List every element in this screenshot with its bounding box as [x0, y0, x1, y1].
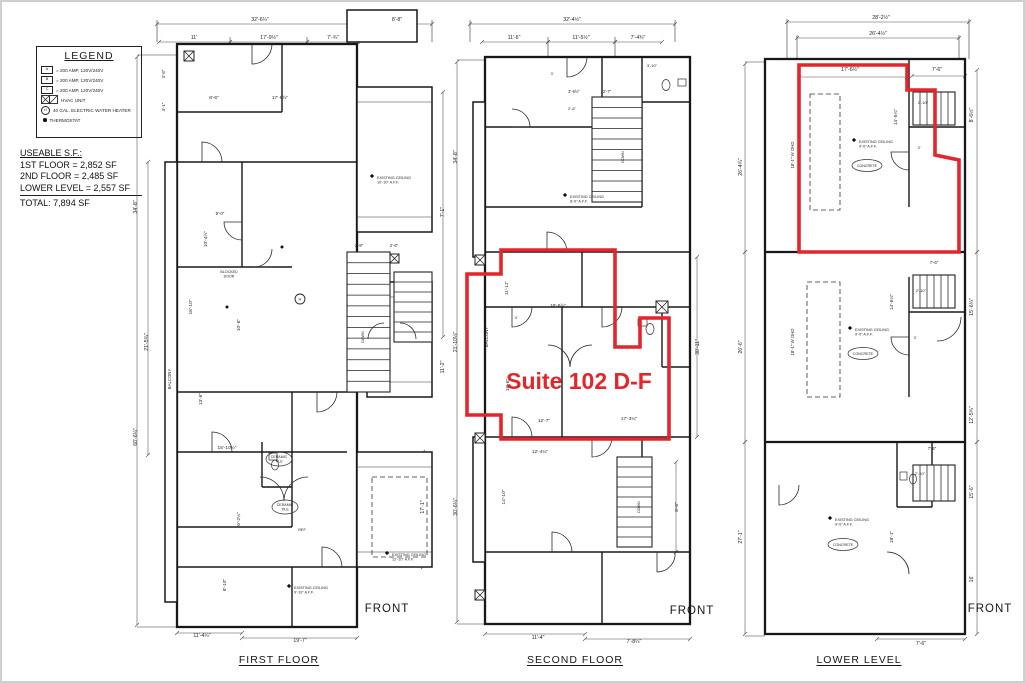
dim-label: BALCONY [167, 369, 172, 390]
dim-label: REF [298, 528, 306, 532]
dim-label: 27'-1" [738, 530, 744, 543]
dim-label: BALCONY [484, 327, 489, 348]
dim-label: 32'-6¼" [251, 17, 269, 23]
dim-label: CONCRETE [853, 352, 874, 356]
legend-item-panel-a: A = 200 AMP, 120V/240V [41, 65, 137, 75]
dim-label: 2'-10" [916, 288, 927, 293]
useable-sf-title: USEABLE S.F.: [20, 148, 142, 160]
dim-label: 11'-4¼" [193, 633, 210, 639]
note-label: EXISTING CEILING [859, 140, 893, 144]
hvac-unit-symbol [390, 254, 399, 263]
door-swings [779, 152, 961, 574]
sf-total: TOTAL: 7,894 SF [20, 198, 142, 210]
dim-label: 7'-6" [916, 641, 926, 647]
note-label: EXISTING CEILING [294, 586, 328, 590]
dim-label: 14'-6¼" [889, 294, 895, 311]
hvac-unit-symbol [184, 51, 194, 61]
dim-label: 16'-10" [188, 299, 194, 314]
note-label: EXISTING CEILING [835, 518, 869, 522]
first-floor-walls [165, 10, 432, 627]
dim-label: 15'-6" [969, 485, 975, 498]
dim-label: 28'-2½" [872, 14, 890, 21]
dim-label: 11'-2" [440, 360, 446, 373]
dim-label: 19'-7" [293, 638, 306, 644]
panel-a-symbol: A [41, 66, 53, 74]
second-floor-plan: Suite 102 D-F 32'-4½"11'-6"11'-5½"7'-4¾"… [452, 7, 752, 667]
front-label-first-floor: FRONT [357, 603, 417, 615]
front-label-second-floor: FRONT [662, 605, 722, 617]
note-label: EXISTING CEILING [570, 195, 604, 199]
lower-level-plan: 28'-2½"26'-4½"17'-6½"7'-6"26'-4¾"26'-6"2… [737, 7, 1025, 667]
floor-plan-sheet: LEGEND A = 200 AMP, 120V/240V B = 200 AM… [0, 0, 1025, 683]
dim-label: 7'-6" [930, 260, 939, 265]
dim-label: 3' [515, 316, 518, 320]
first-floor-plan: H 32'-6¼"8'-8"11'17'-9½"7'-¾"34'-8"60'-6… [132, 7, 462, 667]
dim-label: 18'-6½" [550, 302, 567, 309]
first-floor-title: FIRST FLOOR [209, 654, 349, 666]
dim-label: 17'-9½" [260, 34, 278, 41]
dim-label: 14'-10" [501, 489, 507, 504]
legend-item-hvac: HVAC UNIT [41, 95, 137, 105]
dim-label: 12'-7" [538, 418, 551, 424]
hvac-unit-symbol [475, 433, 485, 443]
dim-label: 13'-6" [198, 393, 204, 406]
dim-label: 18'-1" [889, 531, 895, 544]
legend-box: LEGEND A = 200 AMP, 120V/240V B = 200 AM… [36, 46, 142, 138]
dim-label: 11'-11" [504, 281, 510, 295]
svg-text:9'-0" A.F.F.: 9'-0" A.F.F. [855, 333, 873, 337]
dim-label: 3' [914, 336, 917, 340]
dim-label: 8'-6½" [968, 108, 975, 123]
dim-label: 2'-6" [390, 243, 399, 248]
dim-label: 2'-7" [603, 89, 612, 94]
thermostat-symbol [281, 246, 284, 249]
dim-label: 6'-2¼" [236, 512, 242, 526]
dim-label: 15'-10½" [218, 444, 237, 451]
hvac-unit-symbol [656, 301, 668, 313]
dim-label: 18'-1" W OHD [790, 142, 795, 169]
legend-item-panel-b: B = 200 AMP, 120V/240V [41, 75, 137, 85]
dim-label: 11'-4" [532, 635, 545, 641]
thermostat-icon [43, 118, 47, 122]
water-heater-symbol: H [295, 294, 305, 304]
dim-label: 3' [918, 146, 921, 150]
dim-label: DOWN [361, 331, 365, 343]
dim-label: 12'-5¾" [969, 406, 975, 424]
dim-label: CERAMIC [277, 503, 294, 507]
upper-stairs [592, 97, 642, 202]
dim-label: 2'-10" [915, 471, 926, 476]
dim-label: 26'-4½" [869, 30, 887, 37]
thermostat-symbol [226, 306, 229, 309]
dim-label: 15'-6¼" [969, 298, 975, 316]
dim-label: 16' [969, 576, 975, 583]
dim-label: 7'-6" [928, 446, 937, 451]
dim-label: 17'-6½" [841, 66, 859, 73]
dim-label: 32'-4½" [563, 16, 581, 23]
dim-label: 11' [191, 35, 197, 41]
dim-label: 34'-8" [453, 150, 459, 163]
dim-label: 60'-6¼" [133, 428, 139, 446]
hvac-unit-symbol [475, 590, 485, 600]
dim-label: 7'-¾" [327, 35, 339, 41]
water-heater-icon: H [41, 106, 50, 115]
svg-text:H: H [299, 297, 302, 302]
note-label: EXISTING CEILING [392, 553, 426, 557]
dim-label: 14'-5¼" [893, 109, 899, 126]
svg-text:TILE: TILE [275, 460, 283, 464]
dim-label: 9'-0" [216, 211, 225, 216]
dim-label: 4'-1" [161, 102, 166, 111]
svg-text:8'-0" A.F.F.: 8'-0" A.F.F. [570, 200, 588, 204]
hvac-unit-symbol [475, 255, 485, 265]
front-label-lower-level: FRONT [960, 603, 1020, 615]
svg-text:12'-10" A.F.F.: 12'-10" A.F.F. [392, 558, 414, 562]
sf-line-second-floor: 2ND FLOOR = 2,485 SF [20, 171, 142, 183]
svg-text:DOOR: DOOR [224, 275, 235, 279]
dim-label: 10'-6" [236, 319, 242, 332]
dim-label: 26'-6" [738, 340, 744, 353]
note-label: EXISTING CEILING [377, 176, 411, 180]
dim-label: CONCRETE [857, 164, 878, 168]
dim-label: 7'-1" [440, 207, 446, 217]
dim-label: 2'-8" [355, 243, 364, 248]
main-stairs [347, 252, 390, 392]
dim-label: 7'-8¼" [627, 639, 642, 645]
sink [678, 79, 686, 86]
toilet [662, 80, 670, 91]
suite-102-outline [467, 250, 669, 439]
dim-label: 8'-8" [392, 17, 402, 23]
svg-text:9'-0" A.F.F.: 9'-0" A.F.F. [835, 523, 853, 527]
dim-label: DOWN [621, 151, 625, 163]
dim-label: 3'-6" [161, 69, 166, 78]
dim-label: 16'-6" [505, 379, 511, 392]
svg-text:9'-10" A.F.F.: 9'-10" A.F.F. [294, 591, 314, 595]
dim-label: 17'-9½" [272, 94, 289, 101]
dim-label: 2'-6" [568, 106, 577, 111]
dim-label: 7'-4¾" [631, 35, 646, 41]
dim-label: 7'-6" [932, 67, 942, 73]
suite-102-label: Suite 102 D-F [506, 368, 652, 394]
sf-divider [20, 195, 142, 196]
sf-line-first-floor: 1ST FLOOR = 2,852 SF [20, 160, 142, 172]
dim-label: 30'-6¼" [453, 498, 459, 516]
note-label: EXISTING CEILING [855, 328, 889, 332]
dim-label: 11'-6" [508, 35, 521, 41]
dim-label: 18'-1" W OHD [790, 329, 795, 356]
dim-label: 21'-5¾" [144, 333, 150, 351]
dim-label: 21'-10¼" [453, 332, 459, 353]
dim-label: 30'-11" [695, 339, 701, 355]
dim-label: 8'-6" [674, 502, 680, 512]
sink [900, 472, 907, 480]
dim-label: CERAMIC [271, 455, 288, 459]
lower-level-title: LOWER LEVEL [789, 654, 929, 666]
sf-line-lower-level: LOWER LEVEL = 2,557 SF [20, 183, 142, 195]
dim-label: 2'-10" [918, 100, 929, 105]
lower-level-suite-outline [799, 65, 959, 252]
useable-sf-box: USEABLE S.F.: 1ST FLOOR = 2,852 SF 2ND F… [20, 148, 142, 210]
dim-label: 3' [551, 72, 554, 76]
panel-b-symbol: B [41, 76, 53, 84]
dim-label: 17'-3¼" [621, 416, 638, 422]
dim-label: 8'-10" [222, 579, 228, 592]
dim-label: 3'-6½" [568, 89, 580, 94]
dim-label: 34'-8" [133, 200, 139, 213]
dim-label: BLOCKED [220, 270, 238, 274]
dim-label: CONCRETE [833, 543, 854, 547]
legend-title: LEGEND [41, 50, 137, 62]
dim-label: 12'-4¼" [532, 449, 549, 455]
dim-label: 3'-10" [647, 63, 658, 68]
dim-label: 11'-5½" [572, 34, 589, 41]
second-floor-title: SECOND FLOOR [505, 654, 645, 666]
svg-text:TILE: TILE [281, 508, 289, 512]
dim-label: 8'-6" [209, 95, 219, 101]
svg-text:9'-0" A.F.F.: 9'-0" A.F.F. [859, 145, 877, 149]
dim-label: 26'-4¾" [738, 158, 744, 176]
dim-label: DOWN [637, 501, 641, 513]
second-floor-walls [473, 57, 690, 624]
secondary-stairs [394, 272, 432, 342]
dim-label: 17'-1" [420, 500, 426, 513]
lower-stairs [617, 457, 652, 547]
svg-text:10'-10" A.F.F.: 10'-10" A.F.F. [377, 181, 399, 185]
dim-label: 10'-4½" [202, 231, 209, 248]
legend-item-thermostat: THERMOSTAT [41, 115, 137, 125]
